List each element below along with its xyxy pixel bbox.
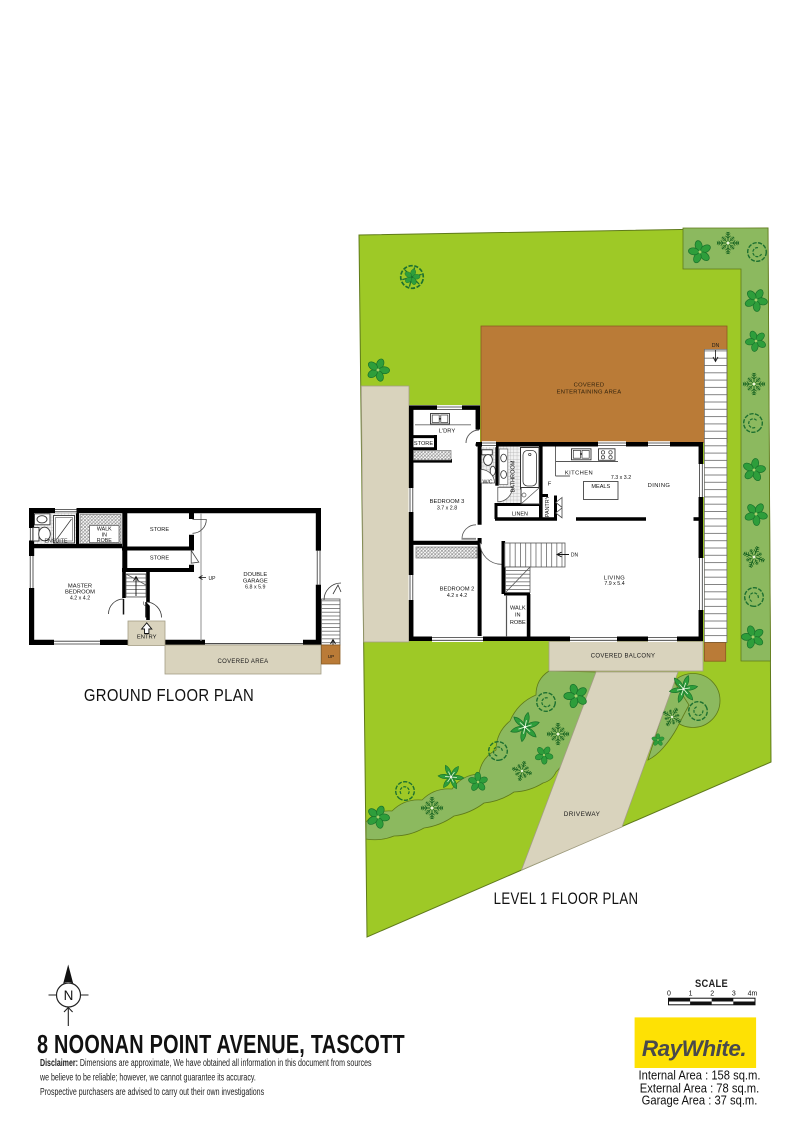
svg-text:DN: DN bbox=[712, 343, 720, 349]
svg-text:RayWhite.: RayWhite. bbox=[642, 1036, 746, 1061]
svg-text:DRIVEWAY: DRIVEWAY bbox=[564, 811, 601, 818]
svg-text:LEVEL 1 FLOOR PLAN: LEVEL 1 FLOOR PLAN bbox=[494, 890, 639, 909]
svg-text:COVERED BALCONY: COVERED BALCONY bbox=[591, 654, 656, 660]
svg-text:UP: UP bbox=[328, 654, 334, 659]
svg-text:STORE: STORE bbox=[150, 527, 169, 533]
svg-text:4m: 4m bbox=[748, 991, 758, 998]
svg-text:BATHROOM: BATHROOM bbox=[511, 460, 517, 492]
svg-text:WALK: WALK bbox=[510, 606, 526, 612]
svg-text:ENTRY: ENTRY bbox=[137, 635, 157, 641]
svg-text:BEDROOM 2: BEDROOM 2 bbox=[440, 587, 475, 593]
svg-text:LINEN: LINEN bbox=[512, 512, 528, 518]
svg-text:7.9 x 5.4: 7.9 x 5.4 bbox=[604, 581, 624, 587]
svg-text:PANTRY: PANTRY bbox=[545, 495, 551, 517]
svg-text:Garage Area : 37 sq.m.: Garage Area : 37 sq.m. bbox=[642, 1093, 758, 1108]
svg-text:DOUBLE: DOUBLE bbox=[243, 572, 267, 578]
svg-text:3.7 x 2.8: 3.7 x 2.8 bbox=[437, 506, 457, 512]
svg-text:BEDROOM 3: BEDROOM 3 bbox=[430, 499, 465, 505]
svg-text:0: 0 bbox=[667, 991, 671, 998]
svg-text:F: F bbox=[548, 482, 552, 488]
svg-text:6.8 x 5.9: 6.8 x 5.9 bbox=[245, 585, 265, 591]
svg-text:GARAGE: GARAGE bbox=[243, 578, 268, 584]
svg-text:4.2 x 4.2: 4.2 x 4.2 bbox=[70, 596, 90, 602]
svg-text:8 NOONAN POINT AVENUE, TASCOTT: 8 NOONAN POINT AVENUE, TASCOTT bbox=[37, 1030, 405, 1059]
svg-text:COVERED AREA: COVERED AREA bbox=[218, 659, 269, 665]
svg-text:ENSUITE: ENSUITE bbox=[45, 538, 68, 544]
svg-text:DINING: DINING bbox=[648, 483, 671, 489]
svg-text:ROBE: ROBE bbox=[97, 538, 112, 544]
svg-text:Prospective purchasers are adv: Prospective purchasers are advised to ca… bbox=[40, 1086, 264, 1097]
svg-text:UP: UP bbox=[209, 576, 217, 582]
svg-text:Disclaimer: Dimensions are app: Disclaimer: Dimensions are approximate, … bbox=[40, 1057, 372, 1068]
svg-text:DN: DN bbox=[571, 553, 579, 559]
svg-text:N: N bbox=[64, 988, 74, 1003]
svg-text:STORE: STORE bbox=[150, 556, 169, 562]
svg-text:3: 3 bbox=[732, 991, 736, 998]
svg-text:7.3 x 3.2: 7.3 x 3.2 bbox=[611, 475, 631, 481]
svg-text:BEDROOM: BEDROOM bbox=[65, 589, 95, 595]
svg-text:MEALS: MEALS bbox=[591, 484, 610, 490]
svg-text:COVERED: COVERED bbox=[574, 383, 605, 389]
svg-text:STORE: STORE bbox=[414, 441, 433, 447]
svg-text:1: 1 bbox=[689, 991, 693, 998]
svg-text:ENTERTAINING AREA: ENTERTAINING AREA bbox=[557, 390, 622, 396]
svg-text:we believe to be reliable; how: we believe to be reliable; however, we c… bbox=[39, 1071, 256, 1082]
svg-text:GROUND FLOOR PLAN: GROUND FLOOR PLAN bbox=[84, 686, 254, 705]
svg-text:SCALE: SCALE bbox=[695, 978, 728, 990]
svg-text:KITCHEN: KITCHEN bbox=[565, 471, 593, 477]
svg-text:2: 2 bbox=[710, 991, 714, 998]
svg-text:W/C: W/C bbox=[482, 480, 492, 486]
svg-text:4.2 x 4.2: 4.2 x 4.2 bbox=[447, 593, 467, 599]
svg-text:ROBE: ROBE bbox=[510, 620, 526, 626]
svg-text:IN: IN bbox=[515, 613, 521, 619]
svg-text:L'DRY: L'DRY bbox=[439, 429, 456, 435]
